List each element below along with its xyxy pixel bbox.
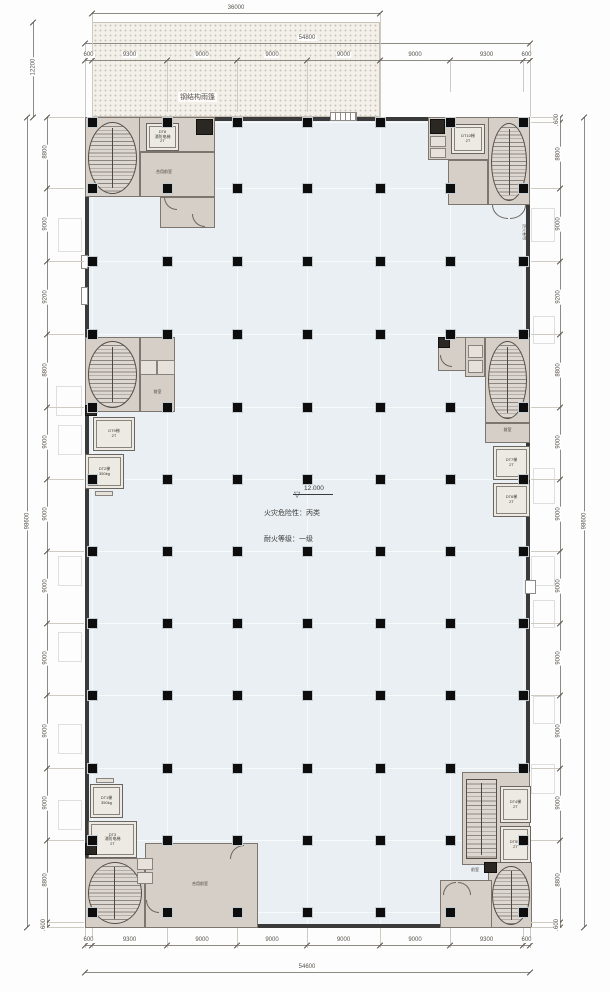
- grid-line: [167, 121, 168, 924]
- right-overall-dim: 98600: [581, 512, 587, 531]
- dim-label: 9000: [194, 937, 209, 943]
- grid-column: [233, 403, 242, 412]
- dim-label: 600: [82, 937, 94, 943]
- grid-column: [376, 691, 385, 700]
- grid-column: [88, 118, 97, 127]
- elevator-dt10: DT10梯 2T: [451, 124, 485, 154]
- grid-column: [88, 475, 97, 484]
- elevator-dt6: DT6梯 2T: [493, 483, 530, 517]
- elevator-dt7-label: DT7梯 2T: [496, 449, 527, 477]
- grid-column: [519, 330, 528, 339]
- elevator-dt10-label: DT10梯 2T: [454, 127, 482, 151]
- closet: [137, 858, 153, 870]
- grid-line: [307, 121, 308, 924]
- closet: [430, 148, 446, 158]
- grid-column: [88, 619, 97, 628]
- fire-hazard-note: 火灾危险性：丙类: [264, 508, 320, 518]
- elevator-dt8-label: DT8 消防电梯 2T: [149, 126, 176, 148]
- core-top-right-lobby: [448, 160, 488, 205]
- ghost-outline: [533, 696, 555, 724]
- ghost-outline: [58, 800, 82, 830]
- counterweight: [95, 491, 113, 496]
- grid-column: [88, 184, 97, 193]
- grid-column: [233, 475, 242, 484]
- extension-line: [92, 14, 93, 117]
- extension-line: [167, 60, 168, 112]
- grid-column: [446, 403, 455, 412]
- elevator-dt8: DT8 消防电梯 2T: [146, 123, 179, 151]
- grid-column: [446, 547, 455, 556]
- wall-opening: [81, 255, 88, 269]
- ghost-outline: [58, 724, 82, 754]
- counterweight: [96, 778, 114, 783]
- grid-column: [303, 619, 312, 628]
- grid-column: [163, 764, 172, 773]
- grid-column: [163, 330, 172, 339]
- canopy-depth-dim: 12200: [30, 58, 36, 77]
- dim-label: 9000: [556, 434, 562, 449]
- closet: [430, 136, 446, 147]
- grid-column: [163, 475, 172, 484]
- grid-column: [376, 547, 385, 556]
- shaft: [196, 119, 213, 135]
- grid-column: [376, 908, 385, 917]
- grid-column: [446, 118, 455, 127]
- top-wall-window: [330, 112, 357, 121]
- grid-column: [303, 257, 312, 266]
- grid-column: [376, 836, 385, 845]
- elevator-dt1: DT1梯 350kg: [90, 784, 123, 818]
- ghost-outline: [58, 218, 82, 252]
- dim-label: 9000: [264, 937, 279, 943]
- wall-opening: [81, 287, 88, 305]
- fire-rating-note: 耐火等级：一级: [264, 534, 313, 544]
- grid-column: [233, 908, 242, 917]
- room-label: 合用前室: [170, 882, 230, 886]
- dim-label: 8800: [556, 362, 562, 377]
- ghost-outline: [56, 386, 82, 416]
- dim-label: 9000: [43, 434, 49, 449]
- grid-column: [303, 330, 312, 339]
- grid-column: [519, 257, 528, 266]
- grid-column: [376, 257, 385, 266]
- grid-column: [519, 691, 528, 700]
- extension-line: [237, 60, 238, 112]
- lobby-label: 前室: [141, 390, 174, 394]
- grid-column: [233, 619, 242, 628]
- dim-label: 600: [520, 937, 532, 943]
- dim-label: 9000: [407, 937, 422, 943]
- grid-column: [376, 184, 385, 193]
- dim-label: 600: [554, 112, 560, 124]
- dimension-line: [85, 43, 530, 44]
- grid-column: [163, 908, 172, 917]
- grid-column: [519, 475, 528, 484]
- extension-line: [48, 840, 84, 841]
- top-overall-dim: 54800: [298, 35, 317, 41]
- grid-column: [163, 257, 172, 266]
- dim-label: 9000: [43, 795, 49, 810]
- extension-line: [48, 768, 84, 769]
- grid-column: [163, 403, 172, 412]
- grid-column: [303, 118, 312, 127]
- stair-spine: [511, 871, 512, 920]
- stair-spine: [507, 347, 508, 413]
- grid-column: [446, 691, 455, 700]
- dimension-line: [92, 13, 380, 14]
- dim-label: 600: [82, 52, 94, 58]
- extension-line: [48, 407, 84, 408]
- left-overall-dim: 98600: [24, 512, 30, 531]
- dim-label: 9000: [336, 52, 351, 58]
- grid-column: [446, 764, 455, 773]
- ghost-outline: [531, 208, 555, 242]
- extension-line: [48, 334, 84, 335]
- grid-column: [376, 475, 385, 484]
- canopy-label: 钢结构雨篷: [178, 92, 217, 102]
- dim-label: 9000: [556, 795, 562, 810]
- grid-column: [163, 619, 172, 628]
- elevation-triangle-icon: ▽: [294, 491, 300, 499]
- grid-column: [303, 475, 312, 484]
- grid-column: [303, 403, 312, 412]
- grid-column: [88, 330, 97, 339]
- elevator-dt1-label: DT1梯 350kg: [93, 787, 120, 815]
- grid-column: [88, 691, 97, 700]
- dim-label: 9000: [264, 52, 279, 58]
- floor-plan-canvas: 钢结构雨篷 DT8 消防电梯 2T 合用前室 DT10梯 2T 前室 DT9梯 …: [0, 0, 610, 992]
- grid-column: [233, 184, 242, 193]
- dim-label: 9000: [43, 216, 49, 231]
- grid-column: [519, 184, 528, 193]
- grid-column: [446, 836, 455, 845]
- extension-line: [48, 623, 84, 624]
- extension-line: [523, 60, 524, 92]
- grid-column: [446, 908, 455, 917]
- dim-label: 600: [554, 917, 560, 929]
- grid-line: [450, 121, 451, 924]
- grid-column: [88, 547, 97, 556]
- elevator-dt6-label: DT6梯 2T: [496, 486, 527, 514]
- grid-column: [303, 547, 312, 556]
- core-top-left-lobby: [140, 152, 215, 197]
- grid-column: [519, 118, 528, 127]
- grid-column: [446, 330, 455, 339]
- dim-label: 600: [41, 917, 47, 929]
- dim-label: 9000: [556, 578, 562, 593]
- extension-line: [48, 479, 84, 480]
- dim-label: 9000: [43, 506, 49, 521]
- grid-column: [376, 403, 385, 412]
- extension-line: [48, 261, 84, 262]
- dim-label: 8800: [43, 362, 49, 377]
- ghost-outline: [58, 632, 82, 662]
- grid-column: [446, 619, 455, 628]
- ghost-outline: [533, 316, 555, 344]
- grid-column: [446, 184, 455, 193]
- grid-column: [88, 836, 97, 845]
- grid-column: [163, 118, 172, 127]
- dimension-line: [85, 972, 530, 973]
- grid-column: [88, 908, 97, 917]
- canopy-width-dim: 36000: [227, 5, 246, 11]
- grid-column: [376, 118, 385, 127]
- shaft: [484, 862, 497, 873]
- closet: [157, 360, 175, 375]
- grid-column: [88, 764, 97, 773]
- dim-label: 9300: [122, 937, 137, 943]
- extension-line: [48, 117, 84, 118]
- dim-label: 8800: [556, 146, 562, 161]
- dim-tick: [527, 969, 533, 975]
- grid-column: [519, 764, 528, 773]
- ghost-outline: [533, 468, 555, 504]
- extension-line: [48, 188, 84, 189]
- grid-column: [88, 257, 97, 266]
- ghost-outline: [58, 425, 82, 455]
- grid-column: [163, 184, 172, 193]
- dim-label: 9000: [43, 650, 49, 665]
- dim-label: 9200: [43, 289, 49, 304]
- extension-line: [48, 927, 84, 928]
- closet: [468, 345, 483, 358]
- grid-column: [519, 908, 528, 917]
- dim-label: 9000: [336, 937, 351, 943]
- extension-line: [48, 695, 84, 696]
- grid-column: [519, 619, 528, 628]
- grid-column: [233, 691, 242, 700]
- extension-line: [48, 922, 84, 923]
- wall-tag: 防火卷帘: [521, 224, 527, 240]
- grid-column: [303, 764, 312, 773]
- dim-label: 9000: [407, 52, 422, 58]
- stair-spine: [481, 783, 482, 855]
- stair-spine: [509, 129, 510, 195]
- grid-column: [303, 184, 312, 193]
- grid-column: [233, 836, 242, 845]
- wall-opening: [525, 580, 536, 594]
- elevator-dt4-label: DT4梯 2T: [503, 789, 528, 820]
- grid-column: [303, 908, 312, 917]
- stair-spine: [114, 867, 115, 919]
- grid-column: [163, 547, 172, 556]
- grid-column: [303, 691, 312, 700]
- elevator-dt3-label: DT3 消防电梯 2T: [91, 824, 134, 855]
- lobby-label: 合用前室: [142, 170, 186, 174]
- bottom-overall-dim: 54600: [298, 964, 317, 970]
- grid-column: [446, 257, 455, 266]
- grid-column: [163, 691, 172, 700]
- ghost-outline: [58, 556, 82, 586]
- grid-column: [376, 619, 385, 628]
- lobby-label: 前室: [490, 428, 525, 432]
- grid-column: [233, 257, 242, 266]
- extension-line: [307, 60, 308, 112]
- dim-label: 600: [520, 52, 532, 58]
- grid-line: [237, 121, 238, 924]
- elevation-value: 12.000: [304, 485, 324, 492]
- elevator-dt9-label: DT9梯 2T: [96, 420, 132, 448]
- grid-column: [376, 764, 385, 773]
- elevator-dt4: DT4梯 2T: [500, 786, 531, 823]
- closet: [468, 360, 483, 373]
- grid-column: [303, 836, 312, 845]
- dim-label: 9300: [479, 937, 494, 943]
- grid-column: [233, 118, 242, 127]
- grid-column: [519, 836, 528, 845]
- dim-label: 9200: [556, 289, 562, 304]
- grid-column: [233, 547, 242, 556]
- steel-canopy: [92, 22, 380, 117]
- core-mid-right-lobby: [485, 423, 530, 443]
- dim-tick: [30, 114, 36, 120]
- dim-label: 9000: [43, 578, 49, 593]
- dim-label: 8800: [43, 872, 49, 887]
- dim-label: 9000: [556, 216, 562, 231]
- grid-column: [519, 403, 528, 412]
- shaft: [430, 119, 445, 134]
- dim-tick: [581, 924, 587, 930]
- stair-spine: [112, 347, 113, 402]
- dim-label: 9000: [556, 506, 562, 521]
- grid-column: [233, 330, 242, 339]
- closet: [137, 872, 153, 884]
- dim-label: 9000: [556, 723, 562, 738]
- grid-column: [376, 330, 385, 339]
- grid-column: [163, 836, 172, 845]
- dim-tick: [24, 924, 30, 930]
- dim-label: 9300: [479, 52, 494, 58]
- grid-column: [88, 403, 97, 412]
- extension-line: [380, 14, 381, 117]
- grid-line: [380, 121, 381, 924]
- dim-label: 8800: [43, 144, 49, 159]
- dim-label: 9000: [194, 52, 209, 58]
- elevator-dt9: DT9梯 2T: [93, 417, 135, 451]
- grid-column: [233, 764, 242, 773]
- closet: [140, 360, 157, 375]
- dim-label: 8800: [556, 872, 562, 887]
- stair-spine: [112, 128, 113, 188]
- dim-label: 9300: [122, 52, 137, 58]
- dim-label: 9000: [43, 723, 49, 738]
- grid-column: [519, 547, 528, 556]
- dim-label: 9000: [556, 650, 562, 665]
- extension-line: [450, 60, 451, 92]
- grid-column: [446, 475, 455, 484]
- extension-line: [48, 551, 84, 552]
